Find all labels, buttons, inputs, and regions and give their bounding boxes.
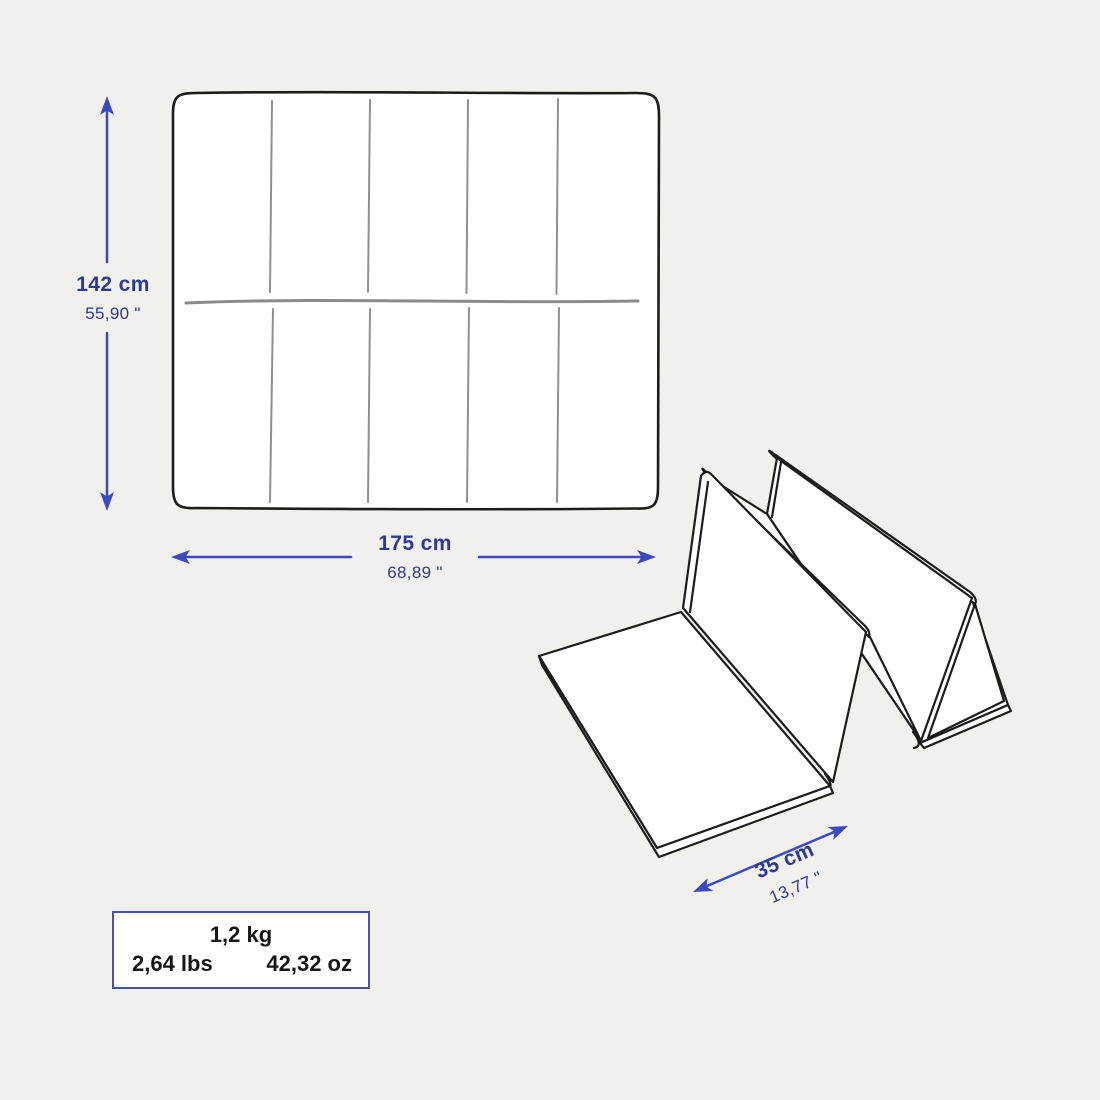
weight-kg-value: 1,2 kg (114, 922, 368, 948)
height-dimension-label: 142 cm 55,90 " (36, 272, 190, 325)
width-dimension-label: 175 cm 68,89 " (338, 531, 492, 584)
weight-lbs-value: 2,64 lbs (132, 951, 213, 977)
height-metric-value: 142 cm (36, 272, 190, 298)
folded-mat-drawing (539, 451, 1011, 857)
flat-mat-drawing (173, 92, 659, 509)
width-imperial-value: 68,89 " (338, 561, 492, 584)
height-imperial-value: 55,90 " (36, 302, 190, 325)
weight-conversions-row: 2,64 lbs 42,32 oz (114, 948, 368, 977)
product-dimension-diagram: 142 cm 55,90 " 175 cm 68,89 " 35 cm 13,7… (0, 0, 1100, 1100)
width-metric-value: 175 cm (338, 531, 492, 557)
weight-info-box: 1,2 kg 2,64 lbs 42,32 oz (112, 911, 370, 989)
weight-oz-value: 42,32 oz (266, 951, 352, 977)
